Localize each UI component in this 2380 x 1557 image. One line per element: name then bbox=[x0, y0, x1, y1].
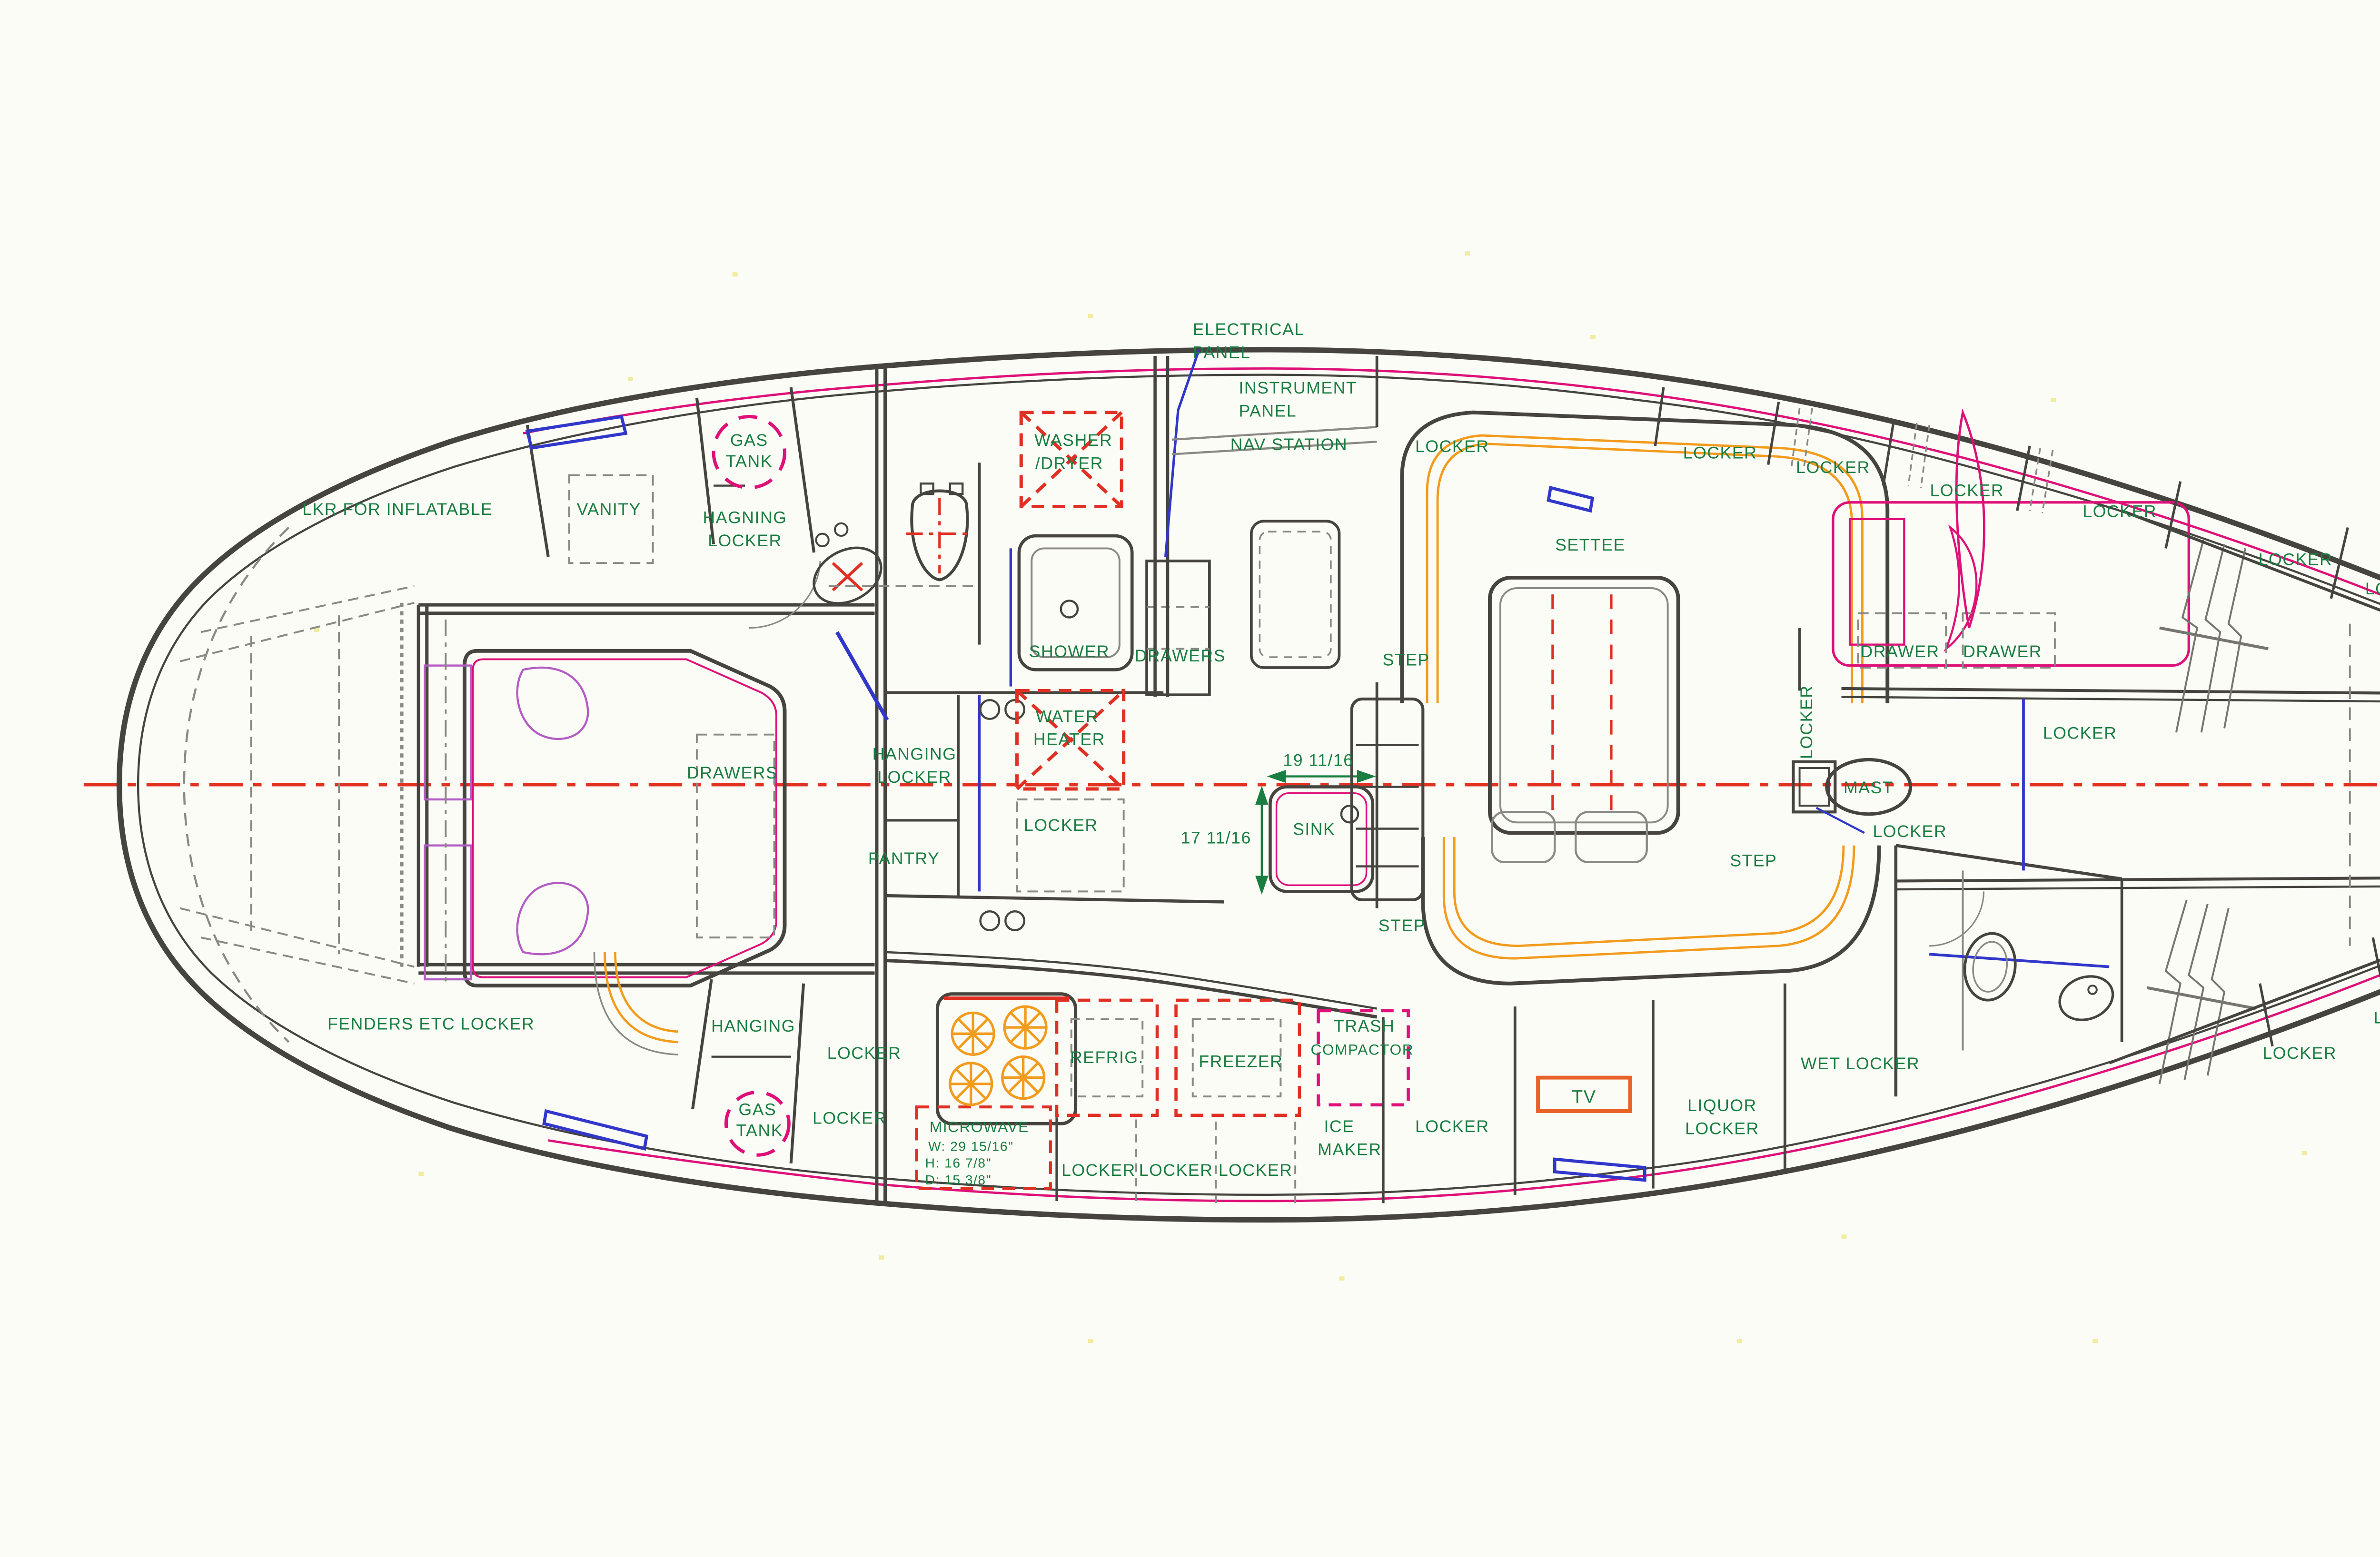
diagram-label: COMPACTOR bbox=[1311, 1041, 1414, 1058]
aft-cabin-part bbox=[749, 561, 820, 628]
passage-walls-part bbox=[1005, 911, 1024, 930]
diagram-label: TANK bbox=[726, 452, 773, 471]
stove-burners-part bbox=[1023, 1078, 1038, 1093]
passage-walls-part bbox=[981, 911, 1000, 930]
diagram-label: LOCKER bbox=[2373, 1008, 2380, 1027]
salon-part bbox=[1500, 588, 1668, 822]
aft-head-part bbox=[1929, 891, 1983, 946]
passage-walls-part bbox=[885, 896, 1224, 902]
diagram-label: MAST bbox=[1844, 778, 1894, 797]
diagram-label: HAGNING bbox=[703, 508, 787, 527]
stove-burners-part bbox=[1009, 1078, 1023, 1093]
aft-head bbox=[1896, 699, 2122, 1096]
scan-speckles-part bbox=[1590, 335, 1596, 339]
diagram-label: LOCKER bbox=[1683, 443, 1757, 462]
mast-part bbox=[1842, 697, 2380, 703]
diagram-label: W: 29 15/16" bbox=[928, 1139, 1014, 1153]
port-aft-compartments-part bbox=[791, 387, 814, 552]
diagram-label: STEP bbox=[1730, 851, 1777, 870]
passage-walls bbox=[885, 693, 1224, 930]
stove-burners-part bbox=[1025, 1027, 1040, 1042]
diagram-label: VANITY bbox=[577, 500, 641, 519]
diagram-label: SETTEE bbox=[1555, 535, 1626, 554]
pilot-berth-part bbox=[1946, 527, 1976, 649]
locker-partitions-part bbox=[2109, 879, 2380, 1063]
stove-burners-part bbox=[958, 1019, 973, 1034]
deck-hatches-part bbox=[1548, 488, 1592, 511]
diagram-label: LOCKER bbox=[2259, 550, 2333, 569]
diagram-label: LOCKER bbox=[1219, 1161, 1293, 1180]
mast-part bbox=[1896, 877, 2380, 881]
diagram-label: SHOWER bbox=[1029, 642, 1110, 661]
salon-part bbox=[1576, 812, 1646, 862]
cockpit-hatch-lockers-part bbox=[2147, 988, 2256, 1009]
nav-station-part bbox=[1259, 532, 1330, 657]
dimension-lines-part bbox=[1358, 771, 1373, 781]
cockpit-hatch-lockers bbox=[2147, 540, 2268, 1084]
cockpit-hatch-lockers-part bbox=[2184, 904, 2207, 1080]
diagram-label: LOCKER bbox=[1415, 1117, 1489, 1136]
scan-speckles-part bbox=[2092, 1339, 2098, 1343]
aft-cabin-part bbox=[594, 952, 678, 1054]
diagram-label: REFRIG. bbox=[1070, 1048, 1144, 1067]
stove-burners-part bbox=[956, 1069, 971, 1084]
stove-burners-part bbox=[956, 1084, 971, 1099]
galley-part bbox=[937, 994, 1075, 1124]
locker-partitions-part-part bbox=[1908, 423, 1917, 486]
aft-head-part bbox=[1929, 954, 2109, 966]
mast-part bbox=[1842, 689, 2380, 695]
diagram-label: NAV STATION bbox=[1230, 435, 1348, 454]
port-fwd-lower-compartments-part bbox=[693, 979, 712, 1109]
scan-speckles-part bbox=[1088, 314, 1093, 318]
diagram-label: PANEL bbox=[1239, 401, 1297, 420]
aft-cabin-part bbox=[517, 668, 588, 739]
diagram-label: TANK bbox=[736, 1121, 783, 1140]
forward-head-part bbox=[816, 534, 828, 546]
scan-speckles-part bbox=[2302, 1151, 2307, 1155]
diagram-label: LOCKER bbox=[1024, 816, 1098, 835]
diagram-label: INSTRUMENT bbox=[1239, 378, 1357, 397]
stove-burners-part bbox=[1011, 1013, 1025, 1027]
scan-speckles-part bbox=[2051, 398, 2056, 402]
diagram-label: LKR FOR INFLATABLE bbox=[302, 500, 493, 519]
diagram-label: LOCKER bbox=[1061, 1161, 1136, 1180]
diagram-label: DRAWER bbox=[1861, 642, 1940, 661]
boat-arrangement-drawing: ELECTRICALPANELINSTRUMENTPANELNAV STATIO… bbox=[0, 0, 2380, 1557]
shower-stall bbox=[1011, 536, 1132, 687]
diagram-label: STEP bbox=[1383, 650, 1430, 670]
dimension-lines-part bbox=[1257, 877, 1267, 892]
dimension-lines-part bbox=[1257, 789, 1267, 804]
dimension-lines-part bbox=[1270, 771, 1285, 781]
plan-svg: ELECTRICALPANELINSTRUMENTPANELNAV STATIO… bbox=[0, 0, 2380, 1557]
diagram-label: DRAWER bbox=[1963, 642, 2042, 661]
sheer-accent-lines-part bbox=[548, 785, 2380, 1201]
diagram-label: LOCKER bbox=[1415, 437, 1489, 456]
diagram-label: LOCKER bbox=[2043, 723, 2117, 742]
diagram-label: WASHER bbox=[1034, 431, 1112, 450]
diagram-label: PANEL bbox=[1193, 343, 1251, 362]
locker-under-heater bbox=[1017, 799, 1123, 891]
salon-part bbox=[1352, 699, 1423, 900]
diagram-label: 19 11/16 bbox=[1283, 751, 1353, 770]
diagram-label: ELECTRICAL bbox=[1193, 320, 1305, 339]
nav-station-part bbox=[1251, 521, 1339, 668]
passage-walls-part bbox=[981, 700, 1000, 719]
diagram-label: LOCKER bbox=[708, 531, 782, 550]
aft-head-part bbox=[2053, 969, 2119, 1027]
diagram-label: DRAWERS bbox=[1135, 646, 1226, 665]
stove-burners-part bbox=[973, 1034, 988, 1048]
scan-speckles-part bbox=[1465, 251, 1470, 256]
salon-part bbox=[1490, 578, 1678, 833]
scan-speckles-part bbox=[418, 1172, 424, 1176]
diagram-label: STEP bbox=[1378, 916, 1426, 935]
cockpit-hatch-lockers-part bbox=[2224, 548, 2245, 728]
diagram-label: LOCKER bbox=[1930, 481, 2004, 500]
scan-speckles-part bbox=[879, 1255, 884, 1260]
diagram-label: MICROWAVE bbox=[930, 1118, 1029, 1135]
locker-partitions-part bbox=[2166, 482, 2181, 549]
stove-burners-part bbox=[1025, 1013, 1040, 1027]
cockpit-hatch-lockers-part bbox=[2160, 628, 2269, 649]
stove-burners-part bbox=[1011, 1027, 1025, 1042]
stove-burners-part bbox=[971, 1069, 986, 1084]
diagram-label: FREEZER bbox=[1199, 1052, 1283, 1071]
shower-stall-part bbox=[1061, 601, 1078, 617]
aft-cabin bbox=[425, 561, 820, 1054]
diagram-label: FENDERS ETC LOCKER bbox=[327, 1015, 535, 1034]
diagram-label: LOCKER bbox=[2262, 1044, 2337, 1063]
stern-lazarette-part bbox=[201, 937, 414, 984]
diagram-label: LIQUOR bbox=[1687, 1096, 1757, 1115]
scan-speckles-part bbox=[1339, 1276, 1344, 1281]
forward-head bbox=[804, 463, 980, 644]
diagram-label: HEATER bbox=[1033, 730, 1105, 749]
aft-head-part bbox=[2088, 985, 2097, 994]
diagram-label: LOCKER bbox=[827, 1044, 902, 1063]
galley-sink-part bbox=[1341, 806, 1358, 822]
diagram-label: HANGING bbox=[711, 1016, 795, 1035]
diagram-label: PANTRY bbox=[868, 849, 940, 868]
galley-sink bbox=[1270, 787, 1372, 892]
locker-partitions-part bbox=[1883, 421, 1894, 485]
diagram-label: GAS bbox=[738, 1100, 776, 1119]
nav-station bbox=[1172, 427, 1377, 668]
locker-under-heater-part bbox=[1017, 799, 1123, 891]
stove-burners-part bbox=[1009, 1063, 1023, 1078]
diagram-label: MAKER bbox=[1318, 1140, 1381, 1159]
diagram-label: 17 11/16 bbox=[1181, 828, 1251, 847]
aft-head-part bbox=[1970, 940, 2010, 994]
port-fwd-lower-compartments-part bbox=[791, 984, 803, 1163]
scan-speckles-part bbox=[733, 272, 738, 276]
diagram-label: GAS bbox=[730, 431, 768, 450]
diagram-label: LOCKER bbox=[877, 768, 952, 787]
diagram-label: LOCKER bbox=[2082, 502, 2157, 521]
diagram-label: TRASH bbox=[1334, 1016, 1395, 1035]
galley-sink-part bbox=[1270, 787, 1372, 892]
diagram-label: LOCKER bbox=[1797, 685, 1816, 759]
scan-speckles-part bbox=[1737, 1339, 1742, 1343]
aft-head-part bbox=[1896, 846, 2122, 879]
diagram-label: /DRYER bbox=[1035, 453, 1103, 473]
mast-part bbox=[1896, 885, 2380, 889]
diagram-label: LOCKER bbox=[1685, 1119, 1759, 1138]
stove-burners-part bbox=[973, 1019, 988, 1034]
deck-hatches-part bbox=[837, 632, 887, 720]
diagram-label: LOCKER bbox=[1873, 822, 1947, 841]
scan-speckles-part bbox=[628, 377, 633, 381]
diagram-label: WATER bbox=[1036, 707, 1099, 726]
salon-part bbox=[1454, 837, 1844, 946]
diagram-label: TV bbox=[1572, 1087, 1596, 1107]
diagram-label: LOCKER bbox=[1139, 1161, 1213, 1180]
stove-burners bbox=[950, 1006, 1046, 1105]
port-aft-compartments-part bbox=[569, 475, 653, 563]
diagram-label: ICE bbox=[1324, 1117, 1354, 1136]
diagram-label: LOCKER bbox=[813, 1108, 887, 1127]
salon-part bbox=[1492, 812, 1555, 862]
passage-walls-part bbox=[1005, 700, 1024, 719]
diagram-label: D: 15 3/8" bbox=[925, 1173, 992, 1187]
diagram-labels: ELECTRICALPANELINSTRUMENTPANELNAV STATIO… bbox=[302, 320, 2380, 1187]
stove-burners-part bbox=[1023, 1063, 1038, 1078]
diagram-label: LOCKER bbox=[1796, 458, 1870, 477]
scan-speckles-part bbox=[1842, 1234, 1847, 1239]
salon-part bbox=[1423, 837, 1879, 984]
aft-cabin-part bbox=[465, 651, 785, 985]
mast-part bbox=[1800, 768, 1829, 806]
diagram-label: DRAWERS bbox=[687, 763, 778, 782]
aft-cabin-part bbox=[517, 883, 588, 954]
diagram-label: LOCKER bbox=[2365, 579, 2380, 598]
salon-part bbox=[1402, 413, 1887, 703]
forward-head-part bbox=[835, 523, 847, 536]
stove-burners-part bbox=[958, 1034, 973, 1048]
stove-burners-part bbox=[971, 1084, 986, 1099]
sheer-accent-lines-part bbox=[523, 368, 2380, 785]
diagram-label: HANGING bbox=[873, 744, 957, 763]
scan-speckles-part bbox=[1088, 1339, 1093, 1343]
diagram-label: WET LOCKER bbox=[1801, 1054, 1920, 1073]
diagram-label: SINK bbox=[1293, 820, 1335, 839]
diagram-label: H: 16 7/8" bbox=[925, 1156, 992, 1171]
stern-lazarette-part bbox=[201, 586, 414, 632]
